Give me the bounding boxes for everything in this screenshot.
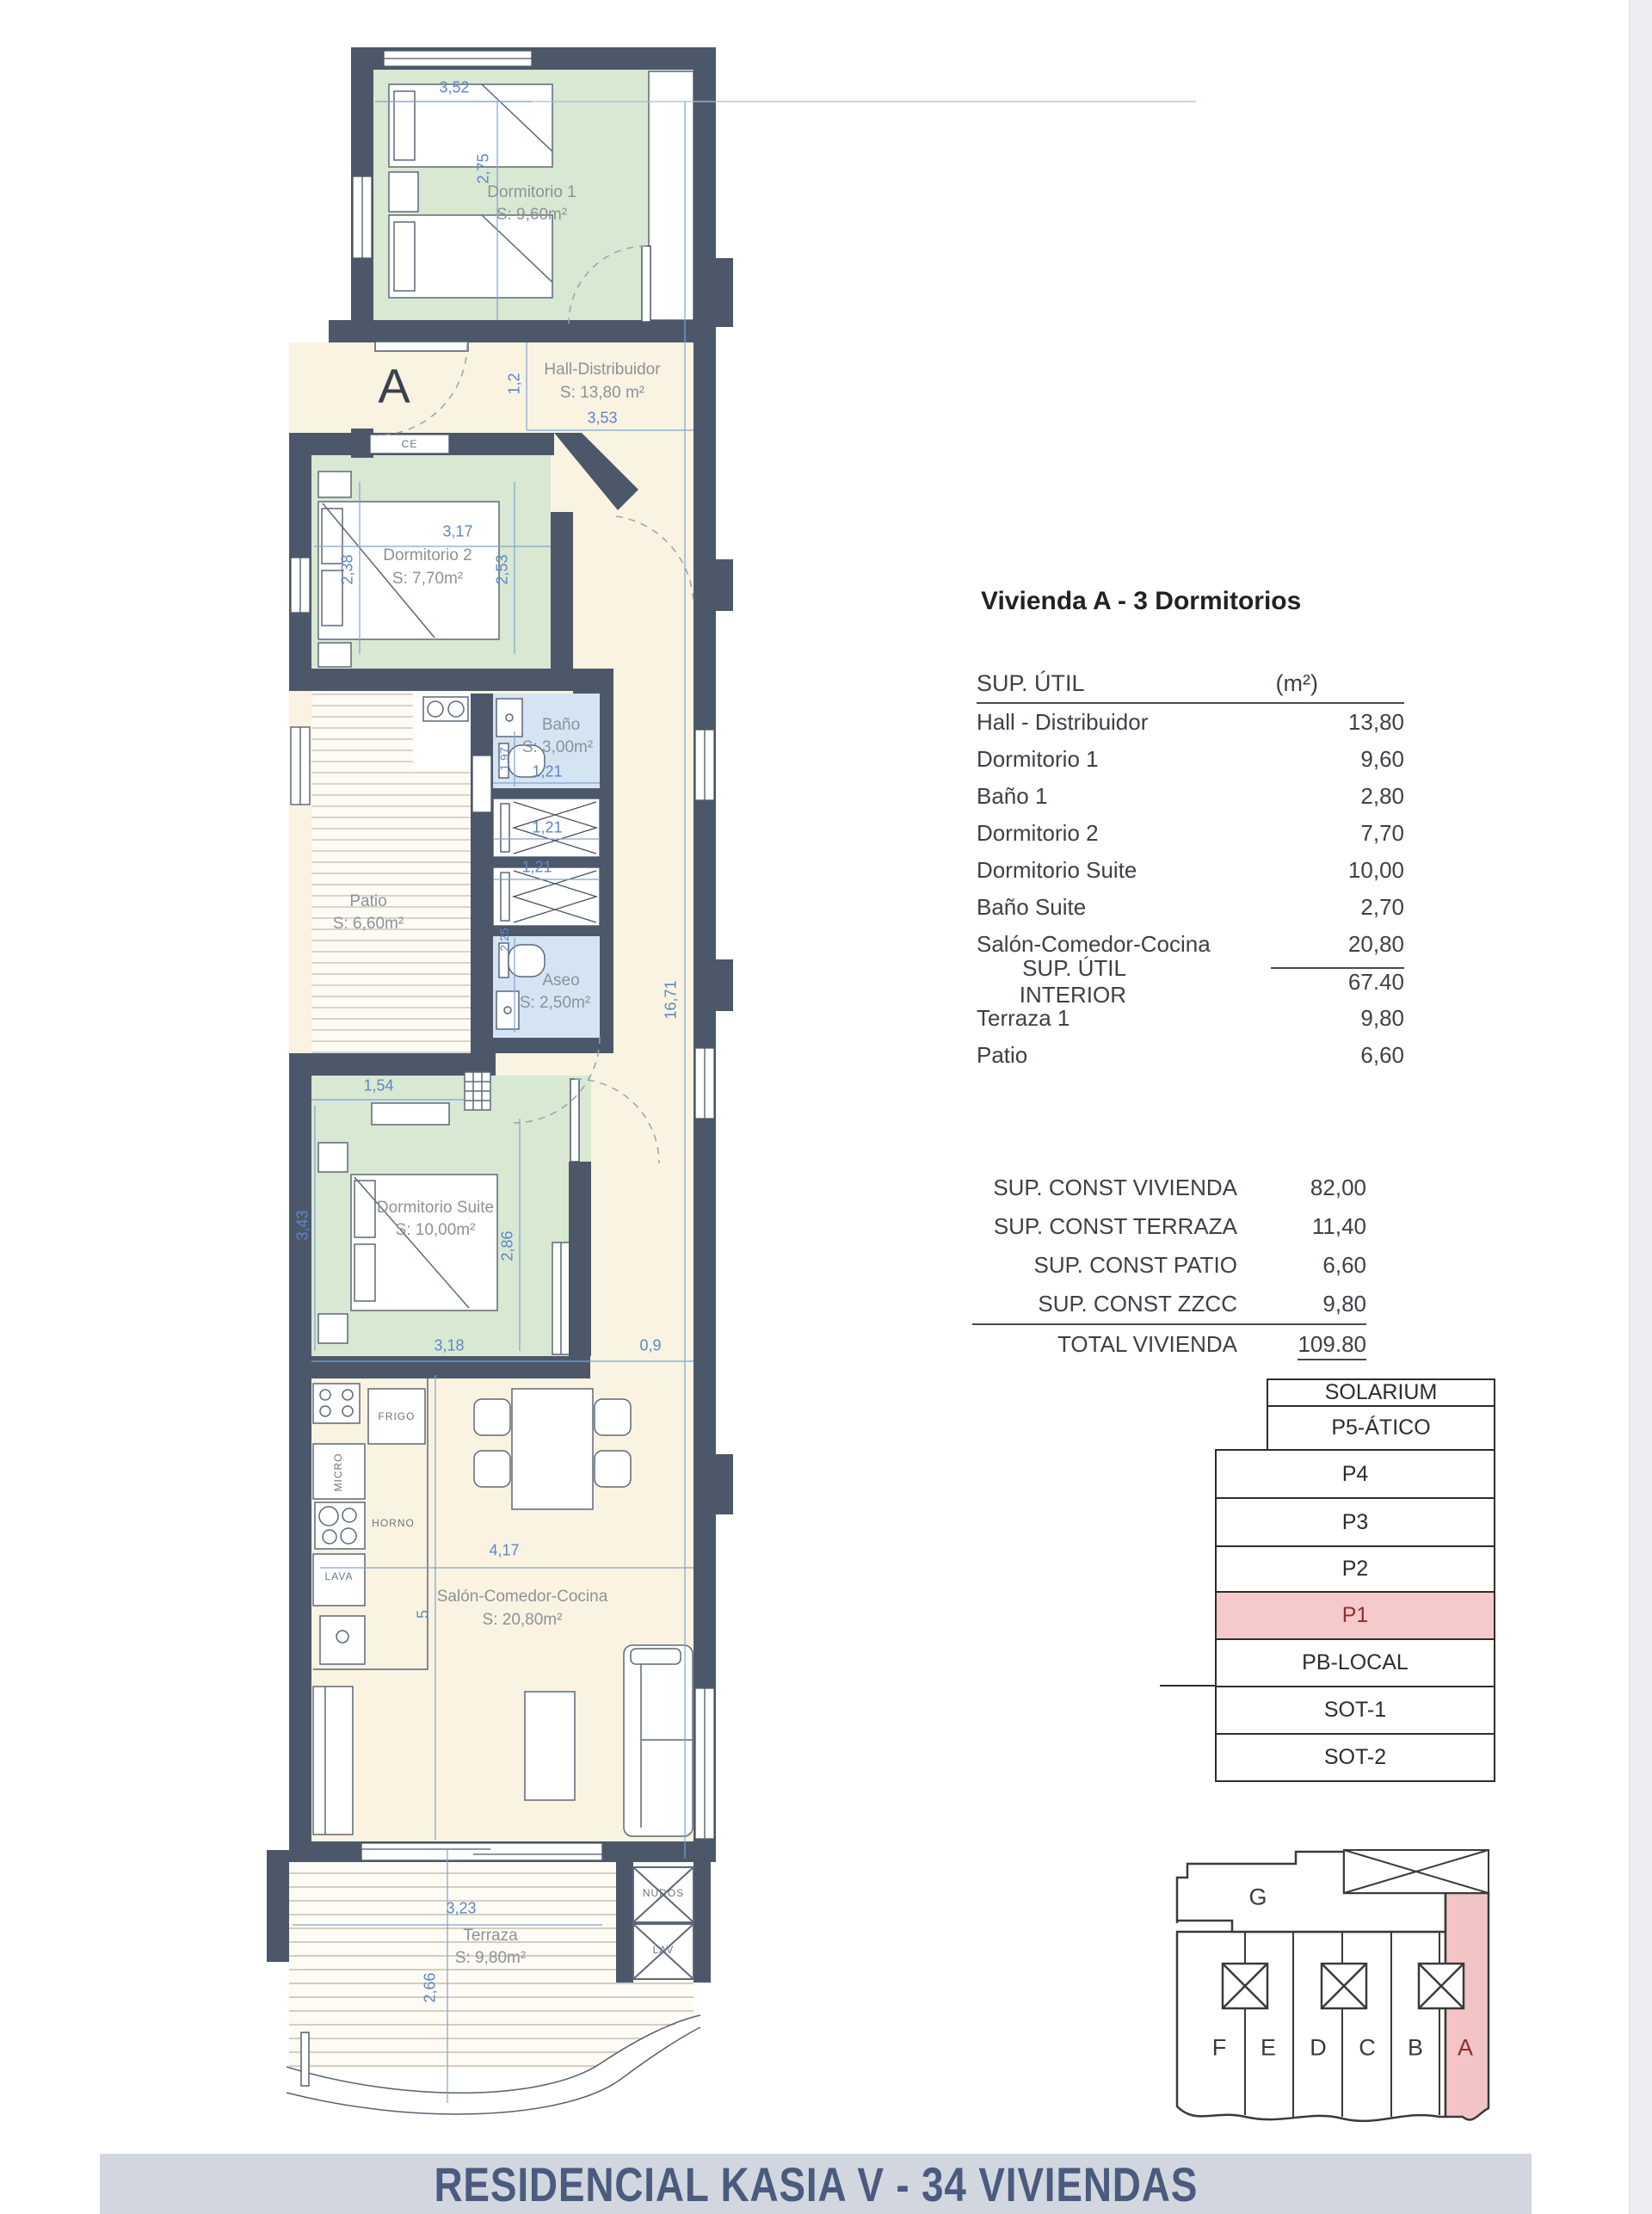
site-unit-f: F (1212, 2035, 1227, 2062)
dim-label: 1,21 (532, 763, 562, 781)
level-solarium: SOLARIUM (1267, 1378, 1495, 1407)
header-unit: (m²) (1276, 670, 1318, 697)
room-name: Hall-Distribuidor (544, 361, 660, 379)
row-label: SUP. CONST VIVIENDA (972, 1175, 1237, 1201)
level-p1-highlighted: P1 (1215, 1591, 1495, 1640)
dim-label: 2,25 (497, 928, 511, 951)
footer-banner: RESIDENCIAL KASIA V - 34 VIVIENDAS (100, 2154, 1532, 2214)
dim-label: 4,17 (489, 1542, 519, 1560)
table-row: SUP. CONST VIVIENDA82,00 (972, 1169, 1366, 1207)
room-name: Dormitorio 2 (383, 546, 472, 565)
table-row: Patio6,60 (977, 1037, 1404, 1074)
room-name: Dormitorio 1 (487, 183, 576, 202)
dim-label: 16,71 (663, 980, 681, 1019)
appliance-label-lava: LAVA (325, 1570, 354, 1582)
dim-label: 5 (415, 1610, 433, 1619)
room-area: S: 7,70m² (392, 570, 463, 589)
row-label: Patio (977, 1042, 1271, 1069)
room-name: Patio (349, 892, 386, 911)
table-row: SUP. CONST ZZCC9,80 (972, 1285, 1366, 1323)
appliance-label-frigo: FRIGO (379, 1410, 416, 1422)
room-area: S: 9,60m² (496, 206, 567, 225)
table-row: Dormitorio 27,70 (977, 815, 1404, 852)
table-row: SUP. CONST TERRAZA11,40 (972, 1207, 1366, 1246)
site-block-label: G (1248, 1884, 1267, 1911)
summary-title: Vivienda A - 3 Dormitorios (981, 587, 1301, 616)
table-header: SUP. ÚTIL (m²) (977, 663, 1404, 704)
page-edge-strip (1629, 0, 1652, 2214)
row-label: TOTAL VIVIENDA (972, 1331, 1237, 1358)
row-label: Baño 1 (977, 783, 1271, 810)
useful-area-table: SUP. ÚTIL (m²) Hall - Distribuidor13,80 … (977, 663, 1404, 1074)
room-name: Terraza (463, 1927, 517, 1946)
dim-label: 3,23 (446, 1900, 476, 1918)
room-area: S: 10,00m² (396, 1221, 476, 1240)
dim-label: 2,66 (422, 1972, 440, 2002)
site-unit-c: C (1359, 2035, 1376, 2062)
dim-label: 0,9 (639, 1337, 661, 1355)
floor-plan-drawing (0, 0, 1652, 2214)
table-row: Baño Suite2,70 (977, 889, 1404, 926)
dim-label: 2,86 (499, 1230, 517, 1261)
dim-label: 3,43 (294, 1210, 312, 1240)
dim-label: 3,17 (442, 523, 472, 541)
row-label: Dormitorio 1 (977, 746, 1271, 773)
water-heater-icon (465, 1072, 490, 1110)
site-unit-d: D (1310, 2035, 1327, 2062)
room-area: S: 2,50m² (520, 994, 590, 1013)
row-label: SUP. CONST TERRAZA (972, 1213, 1237, 1240)
row-value: 9,60 (1271, 746, 1404, 773)
row-value: 7,70 (1271, 820, 1404, 847)
row-label: Dormitorio 2 (977, 820, 1271, 847)
total-value: 109.80 (1298, 1331, 1366, 1360)
dim-label: 1,54 (363, 1077, 393, 1095)
dim-label: 2,38 (339, 554, 357, 584)
room-name: Baño (542, 716, 580, 735)
table-row: Baño 12,80 (977, 778, 1404, 815)
header-label: SUP. ÚTIL (977, 670, 1085, 697)
level-sot-2: SOT-2 (1215, 1733, 1495, 1782)
room-name: Dormitorio Suite (377, 1199, 494, 1218)
row-label: SUP. ÚTIL INTERIOR (977, 955, 1271, 1008)
row-label: Terraza 1 (977, 1005, 1271, 1032)
row-value: 6,60 (1237, 1252, 1366, 1279)
row-value: 6,60 (1271, 1042, 1404, 1069)
dim-label: 1,21 (532, 819, 562, 837)
level-sot-1: SOT-1 (1215, 1686, 1495, 1735)
table-row: Hall - Distribuidor13,80 (977, 704, 1404, 741)
row-value: 9,80 (1237, 1291, 1366, 1317)
row-value: 67.40 (1271, 967, 1404, 996)
coffee-table-icon (525, 1692, 575, 1800)
dim-label: 1,21 (521, 859, 552, 877)
site-unit-a: A (1458, 2035, 1473, 2062)
tv-unit-icon (313, 1687, 353, 1835)
room-area: S: 13,80 m² (560, 384, 644, 403)
dim-label: 3,53 (587, 410, 617, 428)
level-p4: P4 (1215, 1449, 1495, 1499)
row-label: SUP. CONST PATIO (972, 1252, 1237, 1279)
level-p2: P2 (1215, 1545, 1495, 1593)
row-label: SUP. CONST ZZCC (972, 1291, 1237, 1317)
row-value: 11,40 (1237, 1213, 1366, 1240)
row-value: 9,80 (1271, 1005, 1404, 1032)
floor-plan-page: A CE Dormitorio 1 S: 9,60m² Hall-Distrib… (0, 0, 1652, 2214)
site-unit-e: E (1261, 2035, 1276, 2062)
project-title: RESIDENCIAL KASIA V - 34 VIVIENDAS (434, 2156, 1198, 2212)
storage-box-icon (633, 1867, 693, 1979)
dim-label: 2,75 (475, 153, 493, 183)
unit-letter: A (378, 358, 410, 414)
room-name: Aseo (542, 971, 579, 990)
appliance-label-horno: HORNO (372, 1517, 415, 1529)
table-row: Dormitorio 19,60 (977, 741, 1404, 778)
utility-label-nudos: NUDOS (643, 1887, 684, 1899)
site-core-boxes (1223, 1964, 1464, 2008)
row-label: Dormitorio Suite (977, 857, 1271, 884)
room-name: Salón-Comedor-Cocina (437, 1588, 608, 1607)
level-pb-local: PB-LOCAL (1215, 1638, 1495, 1687)
row-label: Baño Suite (977, 894, 1271, 921)
wall-label-ce: CE (402, 438, 418, 450)
room-area: S: 3,00m² (522, 738, 593, 757)
row-value: 13,80 (1271, 709, 1404, 736)
ground-level-line (1160, 1685, 1215, 1687)
dim-label: 3,52 (439, 79, 469, 97)
utility-label-lav: LAV (653, 1944, 675, 1956)
site-unit-b: B (1408, 2035, 1423, 2062)
dim-label: 3,18 (434, 1337, 464, 1355)
sofa-icon (624, 1645, 693, 1836)
row-value: 82,00 (1237, 1175, 1366, 1201)
dim-label: 1,2 (506, 373, 524, 394)
appliance-label-micro: MICRO (332, 1453, 344, 1492)
table-total-row: TOTAL VIVIENDA109.80 (972, 1323, 1366, 1364)
level-p5-atico: P5-ÁTICO (1267, 1405, 1495, 1451)
table-row: Dormitorio Suite10,00 (977, 852, 1404, 889)
row-label: Salón-Comedor-Cocina (977, 931, 1271, 958)
row-value: 2,80 (1271, 783, 1404, 810)
room-area: S: 9,80m² (455, 1949, 526, 1968)
row-value: 10,00 (1271, 857, 1404, 884)
site-plan (1177, 1850, 1489, 2121)
table-subtotal-row: SUP. ÚTIL INTERIOR67.40 (977, 963, 1404, 1000)
table-row: Terraza 19,80 (977, 1000, 1404, 1037)
table-row: SUP. CONST PATIO6,60 (972, 1246, 1366, 1285)
level-p3: P3 (1215, 1497, 1495, 1547)
dim-label: 1,97 (497, 747, 511, 770)
row-value: 109.80 (1237, 1331, 1366, 1358)
room-area: S: 6,60m² (333, 915, 404, 934)
built-area-table: SUP. CONST VIVIENDA82,00 SUP. CONST TERR… (972, 1169, 1366, 1364)
row-label: Hall - Distribuidor (977, 709, 1271, 736)
row-value: 2,70 (1271, 894, 1404, 921)
washer-icon (423, 697, 468, 721)
row-value: 20,80 (1271, 931, 1404, 958)
room-area: S: 20,80m² (483, 1611, 563, 1630)
dim-label: 2,53 (494, 554, 512, 584)
